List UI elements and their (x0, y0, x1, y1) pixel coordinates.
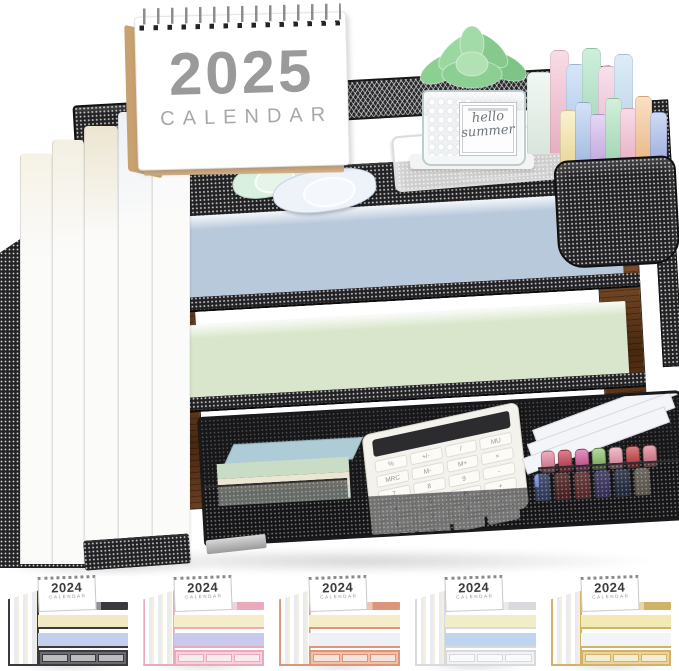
variant-thumbnail-pink[interactable]: 2024 CALENDAR (141, 576, 267, 671)
thumb-paper-1 (581, 615, 672, 629)
thumb-paper-1 (309, 615, 400, 629)
desk-calendar: 2025 CALENDAR (134, 11, 348, 168)
variant-thumbnails: 2024 CALENDAR 2024 CALENDAR 2024 CALENDA… (0, 576, 679, 671)
glass-pot: hello summer (422, 90, 526, 166)
pot-sign-line2: summer (460, 123, 517, 141)
thumb-drawer (309, 650, 400, 666)
product-image: { "scene": { "calendar": { "year": "2025… (0, 0, 679, 671)
thumb-drawer (445, 650, 536, 666)
variant-thumbnail-rose-gold[interactable]: 2024 CALENDAR (277, 576, 403, 671)
thumb-magazine-file (551, 590, 582, 666)
thumb-calendar-title: CALENDAR (310, 593, 368, 600)
calendar-year: 2025 (136, 40, 347, 105)
pen-cup (553, 155, 679, 269)
calendar-page: 2025 CALENDAR (134, 11, 350, 170)
drawer[interactable]: %+/-/MUMRCM-M+×789-456+123=000. (197, 390, 679, 547)
thumb-drawer (174, 650, 265, 666)
thumb-paper-2 (309, 633, 400, 648)
thumb-drawer (581, 650, 672, 666)
calendar-title: CALENDAR (137, 103, 356, 132)
main-product-photo[interactable]: %+/-/MUMRCM-M+×789-456+123=000. 2025 (0, 0, 679, 576)
notebook (52, 140, 84, 564)
thumb-magazine-file (8, 590, 39, 666)
thumb-paper-2 (38, 633, 129, 648)
thumb-paper-2 (581, 633, 672, 648)
thumb-calendar-title: CALENDAR (175, 593, 233, 600)
thumb-calendar-title: CALENDAR (39, 593, 97, 600)
pen-cup-group (556, 96, 678, 266)
thumb-paper-2 (174, 633, 265, 648)
thumb-calendar: 2024 CALENDAR (444, 575, 503, 612)
thumb-calendar: 2024 CALENDAR (37, 575, 96, 612)
thumb-magazine-file (143, 590, 174, 666)
thumb-magazine-file (415, 590, 446, 666)
thumb-calendar: 2024 CALENDAR (173, 575, 232, 612)
notebook (84, 126, 118, 564)
thumb-calendar: 2024 CALENDAR (309, 575, 368, 612)
notebook (118, 112, 152, 564)
thumb-drawer (38, 650, 129, 666)
notebook (20, 154, 52, 564)
thumb-paper-2 (445, 633, 536, 648)
thumb-paper-1 (38, 615, 129, 629)
pot-sign: hello summer (459, 102, 517, 156)
thumb-calendar-title: CALENDAR (446, 593, 504, 600)
variant-thumbnail-black[interactable]: 2024 CALENDAR (5, 576, 131, 671)
thumb-paper-1 (174, 615, 265, 629)
variant-thumbnail-white[interactable]: 2024 CALENDAR (412, 576, 538, 671)
thumb-paper-1 (445, 615, 536, 629)
thumb-calendar: 2024 CALENDAR (580, 575, 639, 612)
variant-thumbnail-gold[interactable]: 2024 CALENDAR (548, 576, 674, 671)
succulent-plant: hello summer (412, 30, 532, 170)
thumb-magazine-file (279, 590, 310, 666)
thumb-calendar-title: CALENDAR (582, 593, 640, 600)
